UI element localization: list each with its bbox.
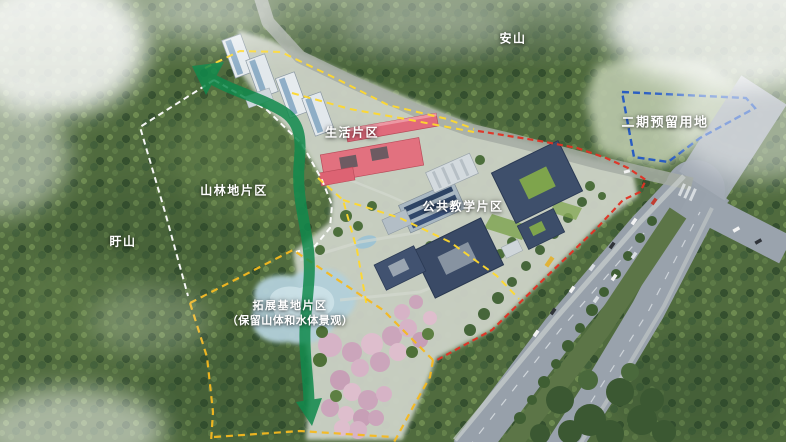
zone-label-expansion-line2: （保留山体和水体景观） <box>227 314 354 329</box>
zone-label-xushan: 盱山 <box>109 233 136 250</box>
site-plan-graphics <box>0 0 786 442</box>
zone-label-expansion-line1: 拓展基地片区 <box>227 299 354 314</box>
east-branch-road <box>700 206 786 250</box>
zone-label-anshan: 安山 <box>499 30 526 47</box>
zone-label-mountain-forest: 山林地片区 <box>200 182 268 199</box>
zone-label-public-teaching: 公共教学片区 <box>422 198 503 215</box>
site-plan-rendering: 安山 二期预留用地 生活片区 山林地片区 盱山 公共教学片区 拓展基地片区 （保… <box>0 0 786 442</box>
zone-label-expansion-base: 拓展基地片区 （保留山体和水体景观） <box>227 299 354 329</box>
zone-label-phase2-reserved: 二期预留用地 <box>621 112 708 131</box>
zone-label-living-area: 生活片区 <box>325 124 379 141</box>
